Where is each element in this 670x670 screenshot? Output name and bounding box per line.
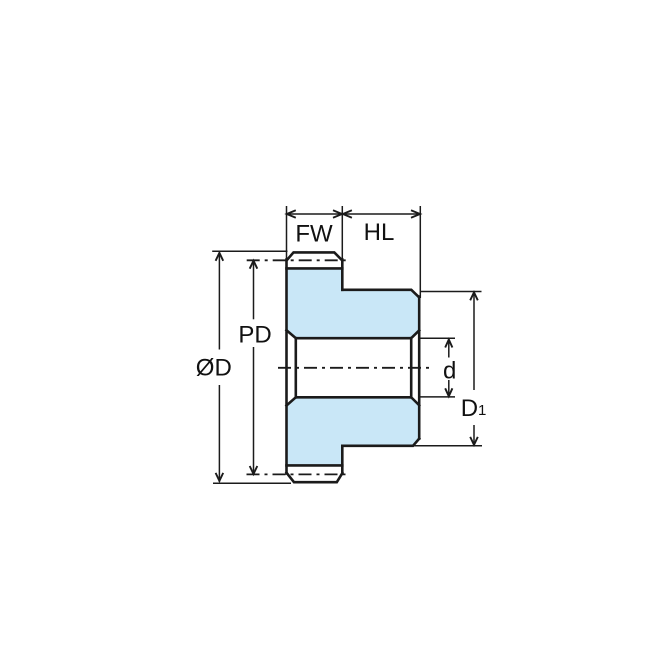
svg-text:PD: PD bbox=[238, 321, 271, 348]
svg-text:HL: HL bbox=[364, 219, 395, 246]
svg-text:d: d bbox=[443, 357, 456, 384]
svg-text:ØD: ØD bbox=[196, 355, 232, 382]
svg-text:FW: FW bbox=[295, 221, 333, 248]
